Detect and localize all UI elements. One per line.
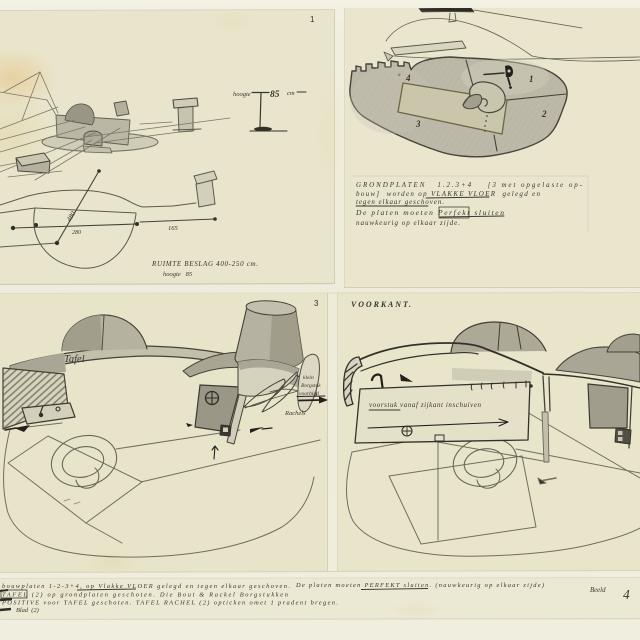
svg-text:Rachels: Rachels: [284, 410, 306, 417]
svg-text:3: 3: [314, 299, 319, 308]
svg-text:tegen elkaar geschoven.: tegen elkaar geschoven.: [356, 198, 444, 206]
svg-text:Borgstuk: Borgstuk: [301, 383, 321, 389]
svg-text:85: 85: [270, 90, 280, 100]
svg-text:Beeld: Beeld: [590, 587, 606, 594]
svg-text:1: 1: [529, 74, 534, 84]
svg-text:cm: cm: [287, 90, 295, 97]
svg-text:klein: klein: [303, 375, 314, 381]
svg-text:hoogte: hoogte: [233, 91, 251, 98]
svg-text:165: 165: [168, 225, 179, 232]
svg-text:bouw] worden op VLAKKE VLOER: bouw] worden op VLAKKE VLOER gelegd en: [356, 190, 541, 198]
svg-text:3: 3: [415, 119, 421, 129]
svg-text:GRONDPLATEN 1.2.3+4 [3 me: GRONDPLATEN 1.2.3+4 [3 met opgelaste op-: [356, 181, 583, 189]
svg-text:De platen moeten Perfekt sluit: De platen moeten Perfekt sluiten: [355, 208, 504, 217]
svg-text:voorstuk vanaf zijkant insc: voorstuk vanaf zijkant inschuiven: [369, 401, 482, 409]
svg-text:4: 4: [623, 587, 630, 602]
svg-text:280: 280: [72, 230, 81, 236]
svg-text:4: 4: [405, 73, 411, 83]
svg-text:1: 1: [310, 15, 315, 24]
svg-text:bouwplaten 1-2-3+4, op Vlakk: bouwplaten 1-2-3+4, op Vlakke VLOER gele…: [2, 583, 290, 590]
svg-text:hoogte 85: hoogte 85: [163, 271, 193, 278]
svg-text:Blad (2): Blad (2): [16, 607, 39, 614]
svg-text:Tafel: Tafel: [64, 354, 85, 365]
svg-text:2: 2: [541, 109, 547, 119]
svg-text:VOORKANT.: VOORKANT.: [351, 300, 411, 309]
svg-text:POSITIVE voor TAFEL geschote: POSITIVE voor TAFEL geschoten. TAFEL RAC…: [1, 600, 338, 607]
svg-text:RUIMTE BESLAG 400-250 cm.: RUIMTE BESLAG 400-250 cm.: [151, 260, 258, 268]
svg-text:nauwkeurig op elkaar zijde.: nauwkeurig op elkaar zijde.: [356, 219, 460, 227]
svg-text:TAFEL (2) op grondplaten g: TAFEL (2) op grondplaten geschoten. Die …: [2, 592, 288, 599]
